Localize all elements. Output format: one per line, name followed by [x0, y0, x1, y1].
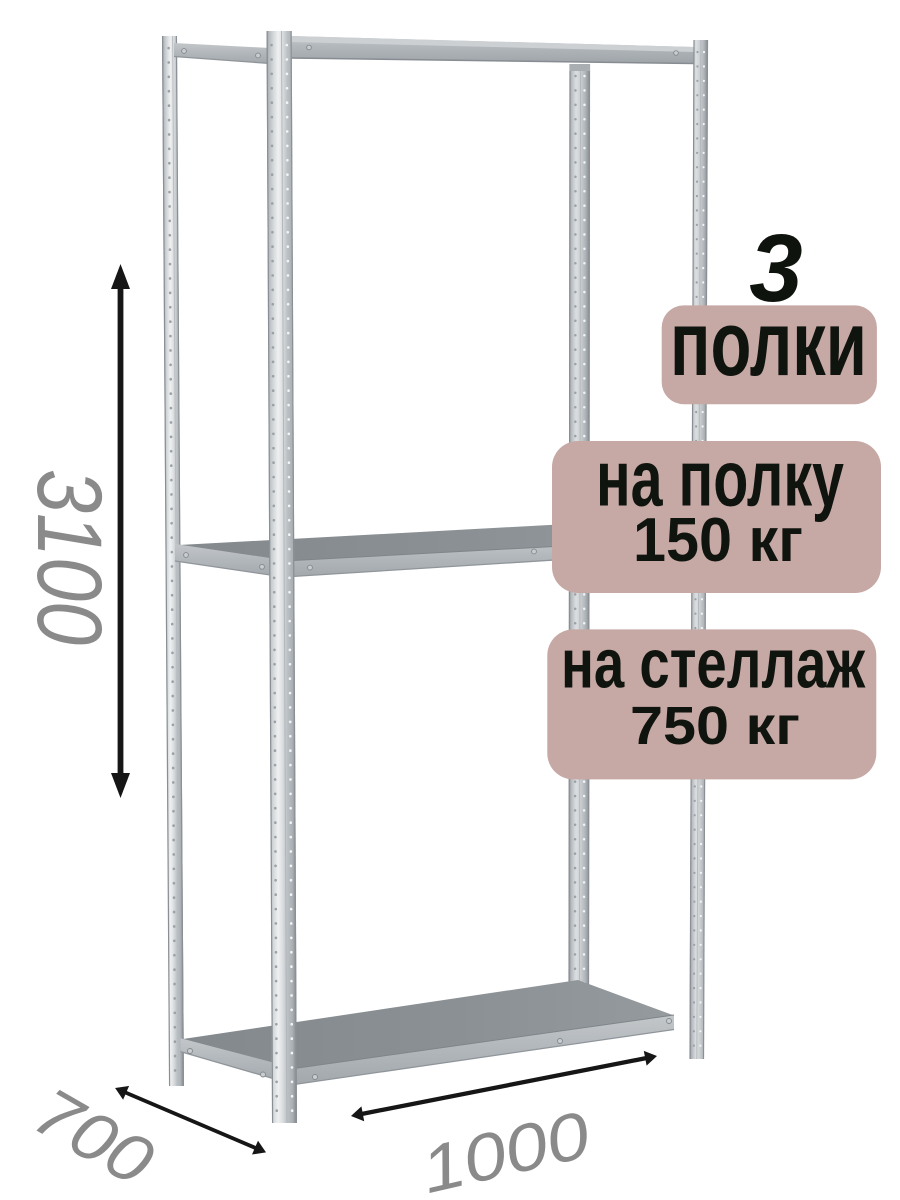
svg-text:полки: полки: [670, 293, 867, 395]
svg-text:150 кг: 150 кг: [633, 506, 803, 575]
svg-text:3100: 3100: [18, 469, 120, 645]
svg-text:на стеллаж: на стеллаж: [561, 625, 866, 703]
svg-text:750 кг: 750 кг: [630, 696, 800, 756]
